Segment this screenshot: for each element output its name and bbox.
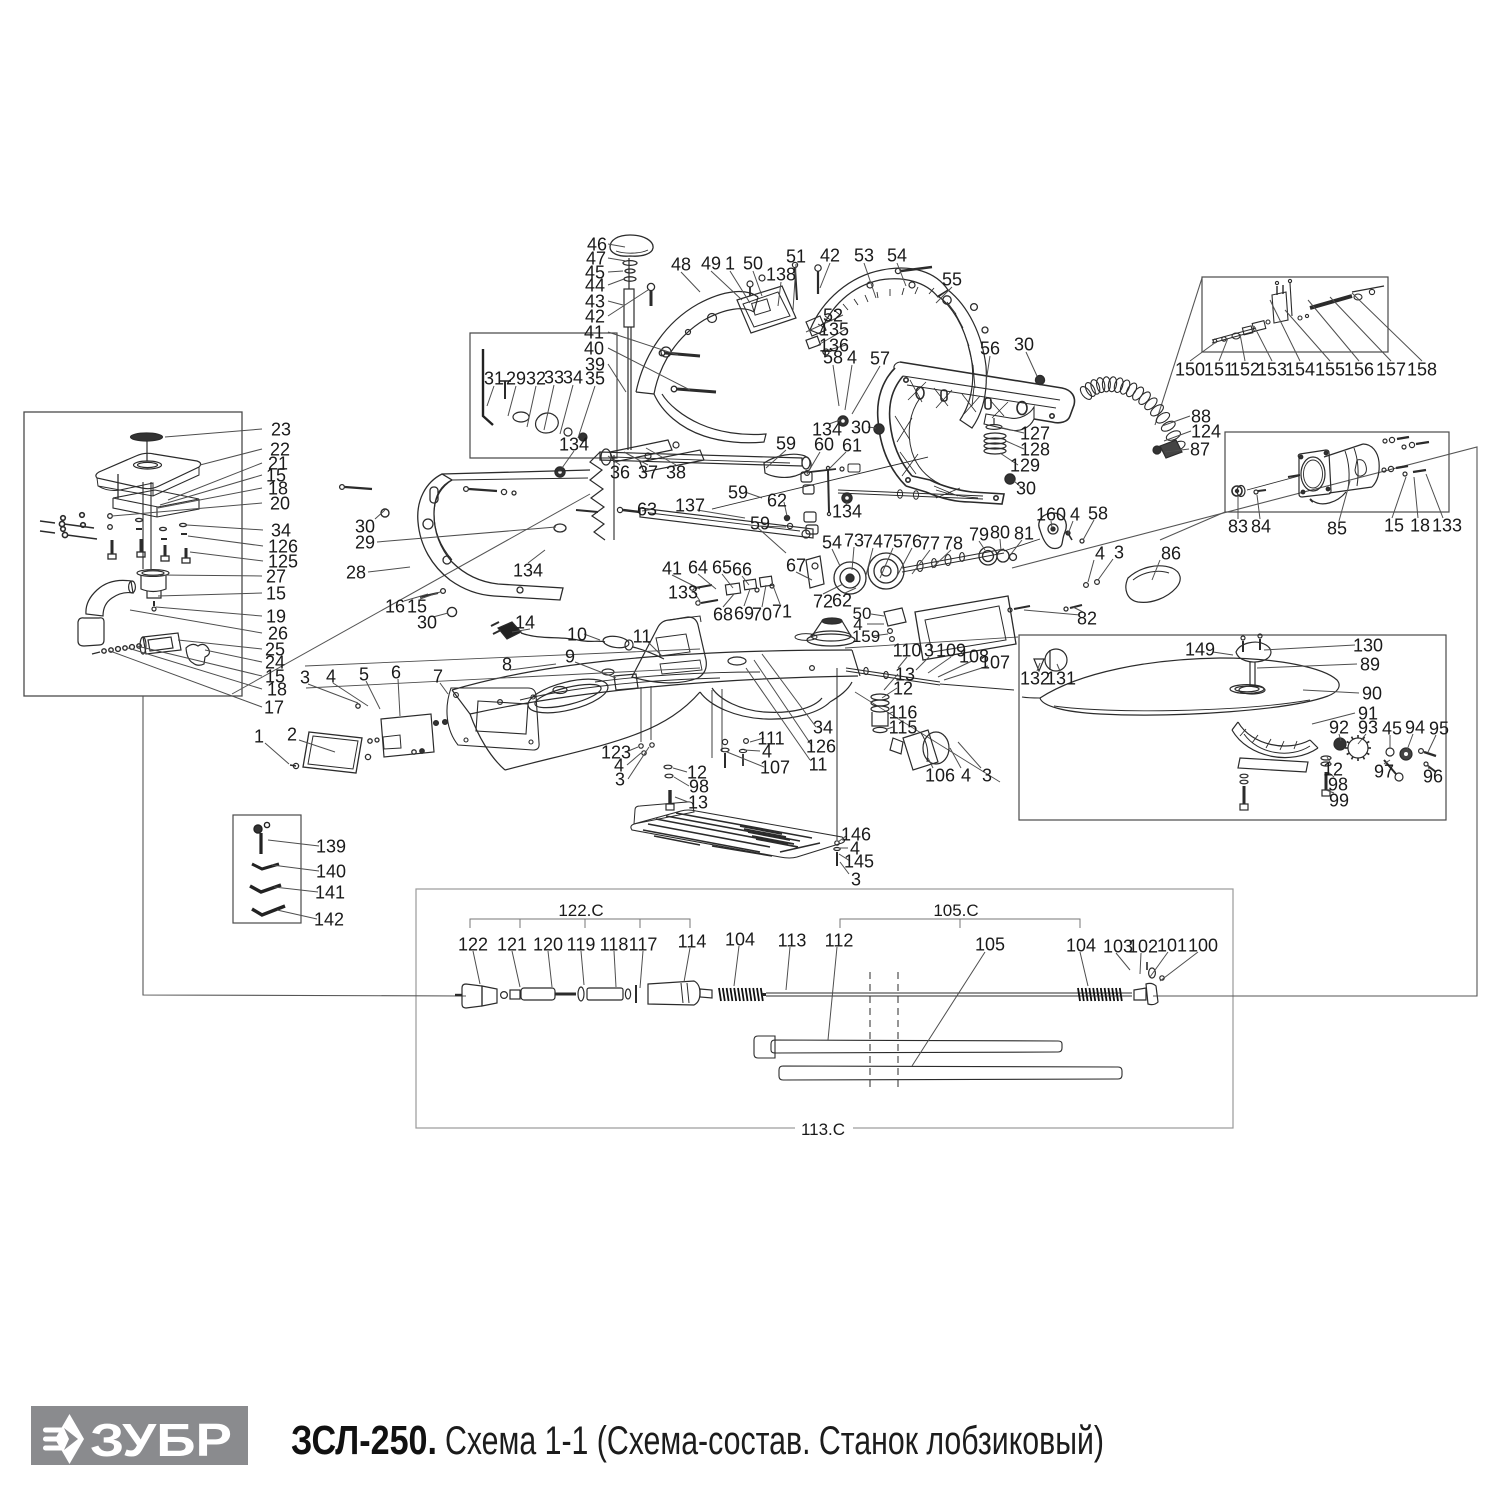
svg-text:81: 81 xyxy=(1014,524,1034,544)
svg-text:29: 29 xyxy=(506,369,526,389)
svg-text:117: 117 xyxy=(629,935,658,955)
svg-text:48: 48 xyxy=(671,255,691,275)
svg-text:72: 72 xyxy=(813,592,833,612)
svg-text:31: 31 xyxy=(484,369,504,389)
svg-text:159: 159 xyxy=(852,627,880,646)
svg-text:134: 134 xyxy=(812,420,842,440)
svg-text:119: 119 xyxy=(567,935,596,955)
svg-text:ЗУБР: ЗУБР xyxy=(90,1414,232,1466)
svg-text:145: 145 xyxy=(844,852,874,872)
svg-text:120: 120 xyxy=(533,935,563,955)
svg-text:110: 110 xyxy=(893,641,922,661)
svg-text:73: 73 xyxy=(844,531,864,551)
svg-text:138: 138 xyxy=(766,265,796,285)
svg-text:ЗСЛ-250.: ЗСЛ-250. xyxy=(291,1417,437,1463)
svg-text:3: 3 xyxy=(982,766,992,786)
svg-text:30: 30 xyxy=(1014,335,1034,355)
svg-text:6: 6 xyxy=(391,663,401,683)
svg-text:95: 95 xyxy=(1429,719,1449,739)
svg-text:142: 142 xyxy=(314,910,344,930)
svg-text:3: 3 xyxy=(924,641,934,661)
svg-text:93: 93 xyxy=(1358,718,1378,738)
svg-text:78: 78 xyxy=(943,534,963,554)
svg-text:30: 30 xyxy=(1016,479,1036,499)
svg-text:97: 97 xyxy=(1374,762,1394,782)
svg-text:85: 85 xyxy=(1327,519,1347,539)
svg-text:42: 42 xyxy=(820,246,840,266)
svg-text:30: 30 xyxy=(417,613,437,633)
svg-text:134: 134 xyxy=(513,561,543,581)
svg-text:100: 100 xyxy=(1188,936,1218,956)
svg-text:36: 36 xyxy=(610,463,630,483)
svg-text:122: 122 xyxy=(458,935,488,955)
svg-text:4: 4 xyxy=(1095,544,1105,564)
svg-text:150: 150 xyxy=(1175,360,1205,380)
svg-text:3: 3 xyxy=(615,770,625,790)
svg-text:59: 59 xyxy=(750,514,770,534)
svg-text:9: 9 xyxy=(565,647,575,667)
svg-text:141: 141 xyxy=(315,883,345,903)
svg-text:130: 130 xyxy=(1353,636,1383,656)
svg-text:153: 153 xyxy=(1257,360,1287,380)
svg-text:137: 137 xyxy=(675,496,705,516)
svg-text:160: 160 xyxy=(1036,505,1066,525)
svg-text:105.C: 105.C xyxy=(933,901,978,920)
svg-text:77: 77 xyxy=(920,534,940,554)
svg-text:80: 80 xyxy=(990,523,1010,543)
svg-text:33: 33 xyxy=(544,368,564,388)
svg-text:51: 51 xyxy=(786,247,806,267)
svg-text:41: 41 xyxy=(662,559,682,579)
svg-text:68: 68 xyxy=(713,605,733,625)
svg-text:90: 90 xyxy=(1362,684,1382,704)
svg-text:67: 67 xyxy=(786,556,806,576)
svg-text:157: 157 xyxy=(1376,360,1406,380)
svg-text:107: 107 xyxy=(760,758,790,778)
svg-text:20: 20 xyxy=(270,494,290,514)
svg-text:59: 59 xyxy=(776,434,796,454)
svg-text:56: 56 xyxy=(980,339,1000,359)
svg-text:112: 112 xyxy=(825,931,854,951)
svg-text:63: 63 xyxy=(637,500,657,520)
svg-text:35: 35 xyxy=(585,369,605,389)
svg-text:131: 131 xyxy=(1046,669,1076,689)
svg-text:149: 149 xyxy=(1185,640,1215,660)
svg-text:59: 59 xyxy=(728,483,748,503)
svg-text:65: 65 xyxy=(712,558,732,578)
svg-text:122.C: 122.C xyxy=(558,901,603,920)
svg-text:3: 3 xyxy=(300,668,310,688)
svg-text:37: 37 xyxy=(638,463,658,483)
svg-text:114: 114 xyxy=(678,932,707,952)
svg-text:4: 4 xyxy=(961,766,971,786)
svg-text:155: 155 xyxy=(1315,360,1345,380)
svg-text:30: 30 xyxy=(851,418,871,438)
svg-text:5: 5 xyxy=(359,665,369,685)
svg-text:3: 3 xyxy=(851,870,861,890)
svg-text:104: 104 xyxy=(1066,936,1096,956)
svg-text:57: 57 xyxy=(870,349,890,369)
svg-text:3: 3 xyxy=(1114,543,1124,563)
svg-text:102: 102 xyxy=(1128,937,1158,957)
svg-text:121: 121 xyxy=(497,935,527,955)
svg-text:4: 4 xyxy=(847,348,857,368)
svg-text:66: 66 xyxy=(732,560,752,580)
svg-text:62: 62 xyxy=(832,591,852,611)
svg-text:2: 2 xyxy=(287,725,297,745)
svg-text:126: 126 xyxy=(806,737,836,757)
svg-text:7: 7 xyxy=(433,667,443,687)
svg-text:113: 113 xyxy=(778,931,807,951)
svg-text:104: 104 xyxy=(725,930,755,950)
svg-text:38: 38 xyxy=(666,463,686,483)
svg-text:84: 84 xyxy=(1251,517,1271,537)
svg-text:1: 1 xyxy=(725,254,735,274)
svg-text:156: 156 xyxy=(1344,360,1374,380)
svg-text:133: 133 xyxy=(668,583,698,603)
svg-text:152: 152 xyxy=(1230,360,1260,380)
svg-text:113.C: 113.C xyxy=(801,1120,845,1139)
svg-text:107: 107 xyxy=(980,653,1010,673)
svg-text:18: 18 xyxy=(267,680,287,700)
svg-text:82: 82 xyxy=(1077,609,1097,629)
svg-text:105: 105 xyxy=(975,935,1005,955)
svg-text:10: 10 xyxy=(567,625,587,645)
svg-text:92: 92 xyxy=(1329,718,1349,738)
svg-text:28: 28 xyxy=(346,563,366,583)
svg-text:34: 34 xyxy=(563,368,583,388)
svg-text:79: 79 xyxy=(969,525,989,545)
svg-text:64: 64 xyxy=(688,558,708,578)
svg-text:139: 139 xyxy=(316,837,346,857)
svg-text:61: 61 xyxy=(842,436,862,456)
svg-text:11: 11 xyxy=(809,755,828,775)
svg-text:154: 154 xyxy=(1285,360,1315,380)
svg-text:4: 4 xyxy=(1070,505,1080,525)
svg-text:99: 99 xyxy=(1329,791,1349,811)
svg-text:70: 70 xyxy=(752,605,772,625)
svg-text:134: 134 xyxy=(832,502,862,522)
svg-text:62: 62 xyxy=(767,491,787,511)
svg-text:55: 55 xyxy=(942,270,962,290)
svg-text:129: 129 xyxy=(1010,456,1040,476)
svg-text:4: 4 xyxy=(326,667,336,687)
svg-text:54: 54 xyxy=(822,533,842,553)
svg-text:106: 106 xyxy=(925,766,955,786)
svg-text:15: 15 xyxy=(266,584,286,604)
svg-text:29: 29 xyxy=(355,533,375,553)
svg-text:16: 16 xyxy=(385,597,405,617)
svg-text:17: 17 xyxy=(264,698,284,718)
svg-text:96: 96 xyxy=(1423,767,1443,787)
svg-text:58: 58 xyxy=(823,348,843,368)
svg-text:101: 101 xyxy=(1157,936,1187,956)
svg-text:11: 11 xyxy=(633,627,652,647)
svg-text:1: 1 xyxy=(254,727,264,747)
svg-text:8: 8 xyxy=(502,655,512,675)
svg-text:115: 115 xyxy=(889,718,918,738)
svg-text:50: 50 xyxy=(743,254,763,274)
svg-text:71: 71 xyxy=(772,602,792,622)
svg-text:34: 34 xyxy=(813,718,833,738)
svg-text:87: 87 xyxy=(1190,440,1210,460)
svg-text:49: 49 xyxy=(701,254,721,274)
svg-text:133: 133 xyxy=(1432,516,1462,536)
svg-text:83: 83 xyxy=(1228,517,1248,537)
svg-text:158: 158 xyxy=(1407,360,1437,380)
svg-text:15: 15 xyxy=(1384,516,1404,536)
svg-text:89: 89 xyxy=(1360,655,1380,675)
svg-text:94: 94 xyxy=(1405,718,1425,738)
svg-text:58: 58 xyxy=(1088,504,1108,524)
svg-text:Схема 1-1 (Схема-состав. Стано: Схема 1-1 (Схема-состав. Станок лобзиков… xyxy=(445,1419,1104,1463)
svg-text:23: 23 xyxy=(271,420,291,440)
svg-text:18: 18 xyxy=(1410,516,1430,536)
svg-text:53: 53 xyxy=(854,246,874,266)
svg-text:13: 13 xyxy=(688,793,708,813)
svg-text:140: 140 xyxy=(316,862,346,882)
svg-text:118: 118 xyxy=(600,935,629,955)
svg-text:45: 45 xyxy=(1382,719,1402,739)
svg-text:12: 12 xyxy=(893,679,913,699)
svg-text:75: 75 xyxy=(883,532,903,552)
svg-text:74: 74 xyxy=(863,532,883,552)
svg-text:14: 14 xyxy=(515,613,535,633)
svg-text:124: 124 xyxy=(1191,422,1221,442)
svg-text:86: 86 xyxy=(1161,544,1181,564)
svg-text:54: 54 xyxy=(887,246,907,266)
svg-text:134: 134 xyxy=(559,435,589,455)
